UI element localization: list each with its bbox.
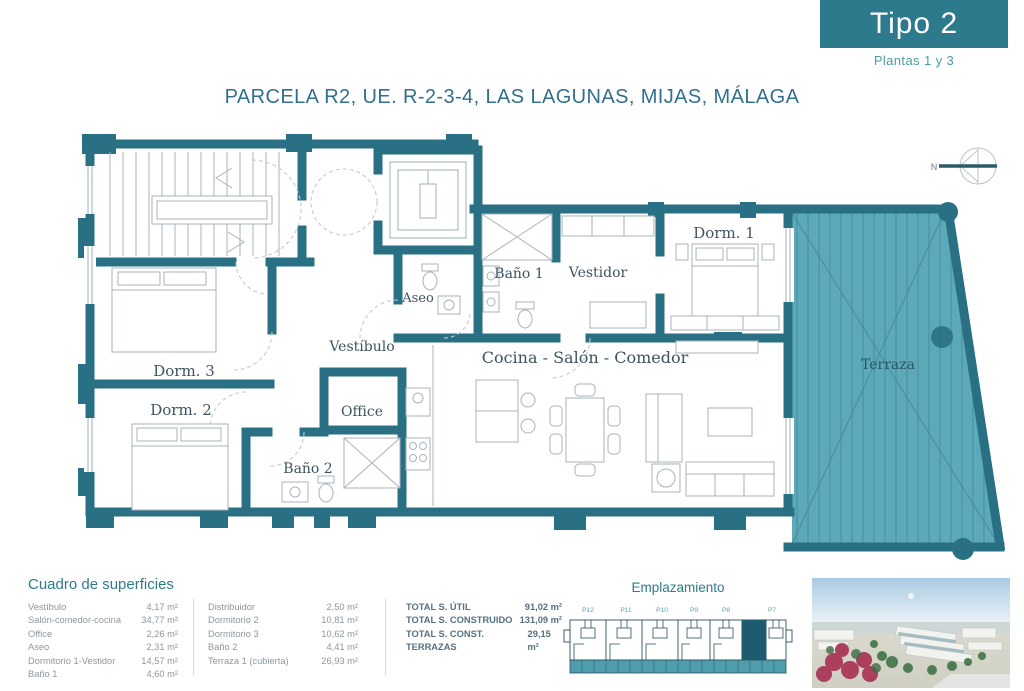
compass-icon: N <box>931 148 997 184</box>
room-label-vestidor: Vestidor <box>568 265 628 281</box>
totals-block: TOTAL S. ÚTIL91,02 m² TOTAL S. CONSTRUID… <box>406 601 562 641</box>
site-plan-heading: Emplazamiento <box>562 580 794 595</box>
table-row: Baño 24,41 m² <box>208 641 358 654</box>
surfaces-column-right: Distribuidor2,50 m² Dormitorio 210,81 m²… <box>208 601 358 668</box>
compass-north-label: N <box>931 162 938 172</box>
site-terrace-strip <box>570 660 786 673</box>
room-label-dorm1: Dorm. 1 <box>693 224 755 242</box>
room-label-dorm3: Dorm. 3 <box>153 362 215 380</box>
svg-text:P9: P9 <box>690 607 698 614</box>
table-row: Aseo2,31 m² <box>28 641 178 654</box>
room-label-salon: Cocina - Salón - Comedor <box>482 348 689 367</box>
elevator <box>390 162 466 238</box>
svg-text:P8: P8 <box>722 607 730 614</box>
table-row: Office2,26 m² <box>28 628 178 641</box>
room-label-aseo: Aseo <box>401 291 434 306</box>
room-label-office: Office <box>341 404 383 420</box>
room-label-dorm2: Dorm. 2 <box>150 401 212 419</box>
staircase <box>110 152 279 256</box>
aerial-photo <box>812 578 1010 688</box>
total-row: TOTAL S. CONSTRUIDO131,09 m² <box>406 614 562 627</box>
table-row: Vestíbulo4,17 m² <box>28 601 178 614</box>
room-label-terraza: Terraza <box>861 357 915 373</box>
table-row: Baño 14,60 m² <box>28 668 178 681</box>
table-row: Dormitorio 310,62 m² <box>208 628 358 641</box>
surfaces-column-left: Vestíbulo4,17 m² Salón-comedor-cocina34,… <box>28 601 178 681</box>
terrace-area <box>792 213 998 544</box>
svg-text:P11: P11 <box>620 607 632 614</box>
highlighted-unit <box>742 620 766 660</box>
total-row: TOTAL S. ÚTIL91,02 m² <box>406 601 562 614</box>
room-label-bano1: Baño 1 <box>494 266 543 282</box>
room-label-vestibulo: Vestíbulo <box>328 339 394 355</box>
room-label-bano2: Baño 2 <box>283 461 332 477</box>
portal-labels: P12 P11 P10 P9 P8 P7 <box>582 607 776 614</box>
svg-text:P7: P7 <box>768 607 776 614</box>
svg-text:P10: P10 <box>656 607 668 614</box>
table-row: Terraza 1 (cubierta)26,93 m² <box>208 655 358 668</box>
table-divider <box>193 599 194 675</box>
site-plan: P12 P11 P10 P9 P8 P7 <box>560 594 796 690</box>
table-row: Salón-comedor-cocina34,77 m² <box>28 614 178 627</box>
table-divider <box>385 599 386 675</box>
svg-text:P12: P12 <box>582 607 594 614</box>
table-row: Distribuidor2,50 m² <box>208 601 358 614</box>
table-row: Dormitorio 1-Vestidor14,57 m² <box>28 655 178 668</box>
table-row: Dormitorio 210,81 m² <box>208 614 358 627</box>
total-row: TOTAL S. CONST. TERRAZAS29,15 m² <box>406 628 562 641</box>
surfaces-heading: Cuadro de superficies <box>28 576 174 593</box>
